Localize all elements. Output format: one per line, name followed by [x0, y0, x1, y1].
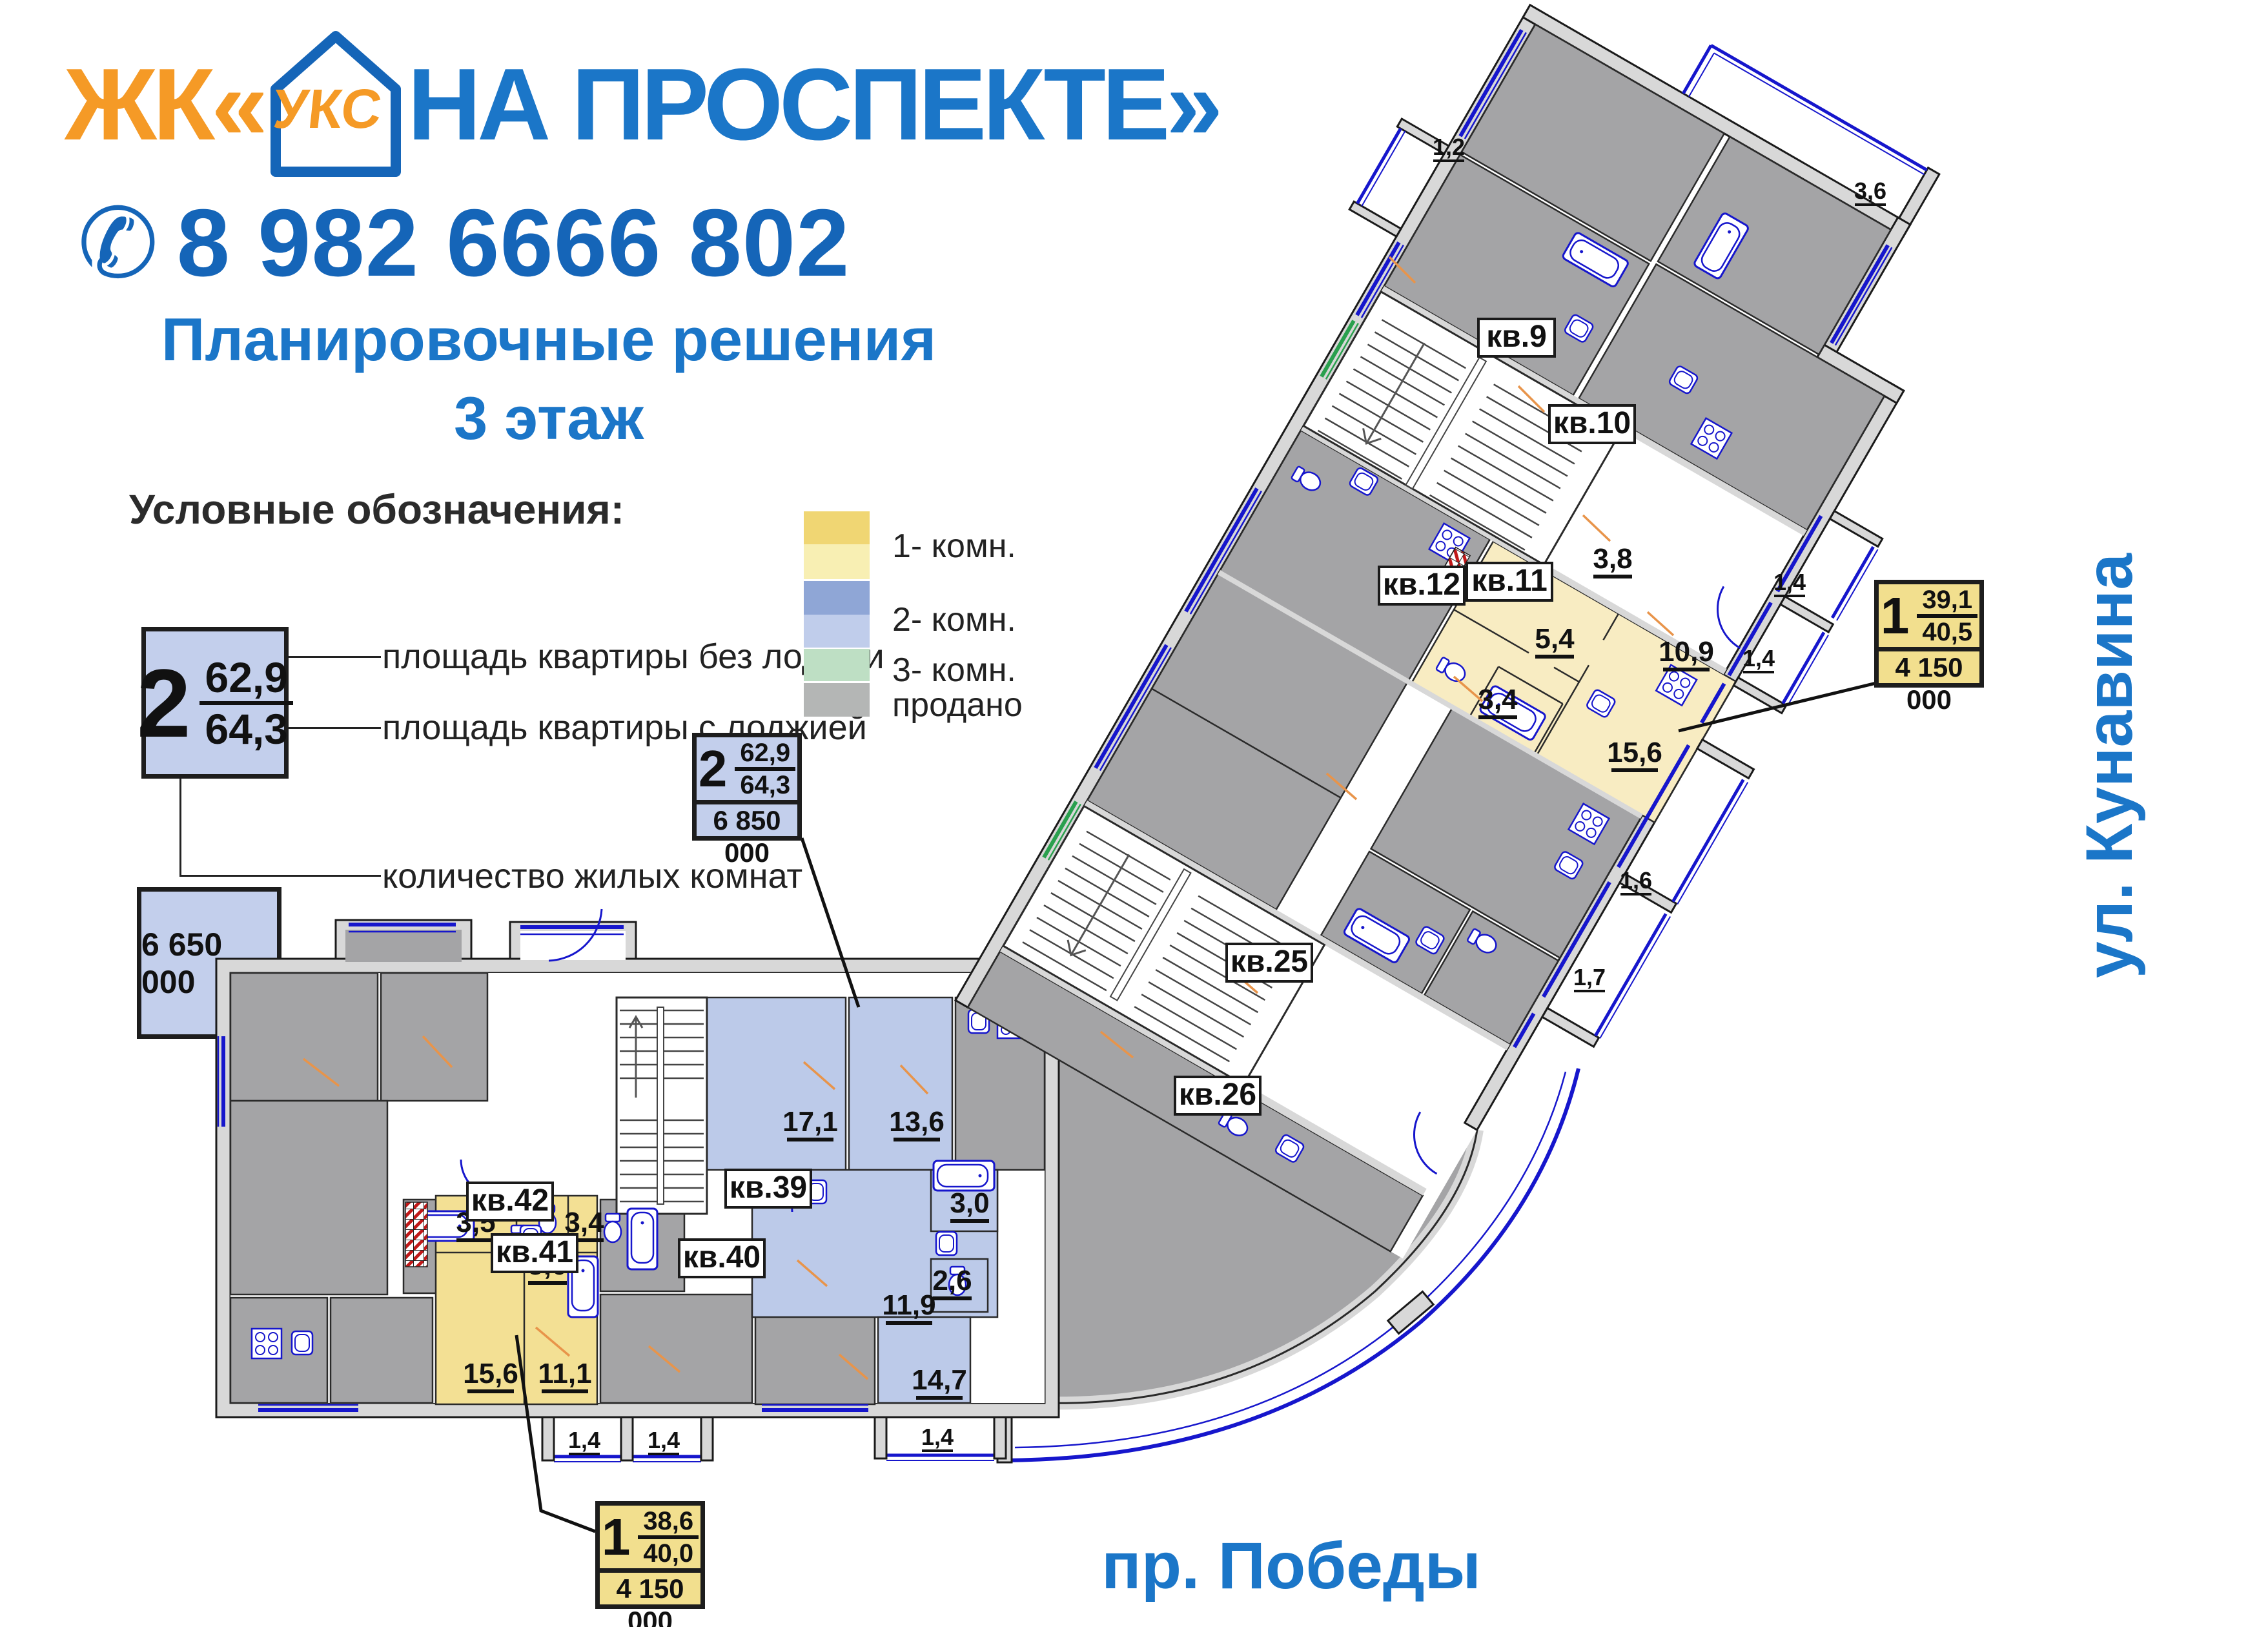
bathtub-icon [628, 1209, 657, 1269]
price-tag-1room-bottom: 1 38,6 40,0 4 150 000 [595, 1501, 705, 1609]
tag-area-bottom: 40,5 [1917, 618, 1977, 646]
tag-area-top: 38,6 [638, 1507, 699, 1539]
toilet-icon [604, 1214, 621, 1242]
dim: 10,9 [1659, 636, 1714, 668]
tag-area-top: 62,9 [735, 739, 795, 771]
dim: 1,4 [1773, 569, 1806, 595]
dim: 2,6 [932, 1265, 972, 1296]
dim: 1,4 [1742, 645, 1775, 671]
dim: 3,4 [1478, 684, 1518, 715]
dim: 11,9 [882, 1289, 935, 1321]
tag-area-top: 39,1 [1917, 586, 1977, 618]
dim: 1,4 [648, 1427, 680, 1453]
tag-rooms: 1 [1881, 590, 1910, 642]
dim: 3,6 [1854, 178, 1886, 204]
floor-plan: 17,1 13,6 3,0 2,6 11,9 14,7 3,5 5,0 3,4 … [0, 0, 2268, 1627]
dim: 13,6 [889, 1106, 945, 1138]
tag-area-bottom: 64,3 [735, 771, 795, 799]
apt-label-kv12: кв.12 [1383, 568, 1460, 602]
poster-root: ЖК« УКС НА ПРОСПЕКТЕ» ✆ 8 982 6666 802 П… [0, 0, 2268, 1627]
vent-shaft [405, 1202, 427, 1267]
dim: 17,1 [782, 1106, 838, 1138]
dim: 11,1 [538, 1358, 591, 1389]
sink-icon [936, 1232, 957, 1255]
dim: 1,6 [1620, 867, 1652, 894]
dim: 14,7 [912, 1364, 967, 1396]
apt-label-kv40: кв.40 [683, 1240, 761, 1274]
dim: 1,4 [921, 1424, 954, 1450]
tag-price: 6 850 000 [697, 804, 797, 869]
price-tag-2room: 2 62,9 64,3 6 850 000 [692, 733, 802, 841]
dim: 1,2 [1433, 134, 1465, 160]
apt-label-kv25: кв.25 [1231, 945, 1308, 979]
dim: 3,0 [950, 1187, 989, 1219]
tag-rooms: 1 [602, 1511, 631, 1563]
dim: 1,7 [1573, 964, 1606, 990]
dim: 1,4 [568, 1427, 600, 1453]
apt-label-kv39: кв.39 [730, 1171, 807, 1205]
dim: 15,6 [463, 1358, 518, 1389]
street-kunavina: ул. Кунавина [2072, 553, 2146, 978]
tag-price: 4 150 000 [1879, 651, 1979, 716]
apt-label-kv26: кв.26 [1179, 1078, 1256, 1112]
stairwell-horizontal-wing [617, 998, 707, 1214]
bathtub-icon [934, 1161, 994, 1191]
apt-label-kv42: кв.42 [471, 1183, 549, 1218]
tag-price: 4 150 000 [600, 1573, 700, 1627]
price-tag-1room-right: 1 39,1 40,5 4 150 000 [1874, 580, 1984, 688]
sink-icon [292, 1331, 312, 1355]
dim: 5,4 [1535, 623, 1575, 655]
street-pobedy: пр. Победы [1101, 1529, 1481, 1602]
stove-icon [252, 1329, 281, 1358]
dim: 3,8 [1593, 543, 1632, 575]
dim: 15,6 [1607, 737, 1662, 768]
tag-rooms: 2 [699, 743, 728, 795]
apt-label-kv10: кв.10 [1553, 406, 1631, 440]
tag-area-bottom: 40,0 [638, 1539, 699, 1568]
apt-label-kv41: кв.41 [496, 1235, 573, 1269]
apt-label-kv9: кв.9 [1486, 320, 1547, 354]
apt-label-kv11: кв.11 [1471, 564, 1548, 598]
